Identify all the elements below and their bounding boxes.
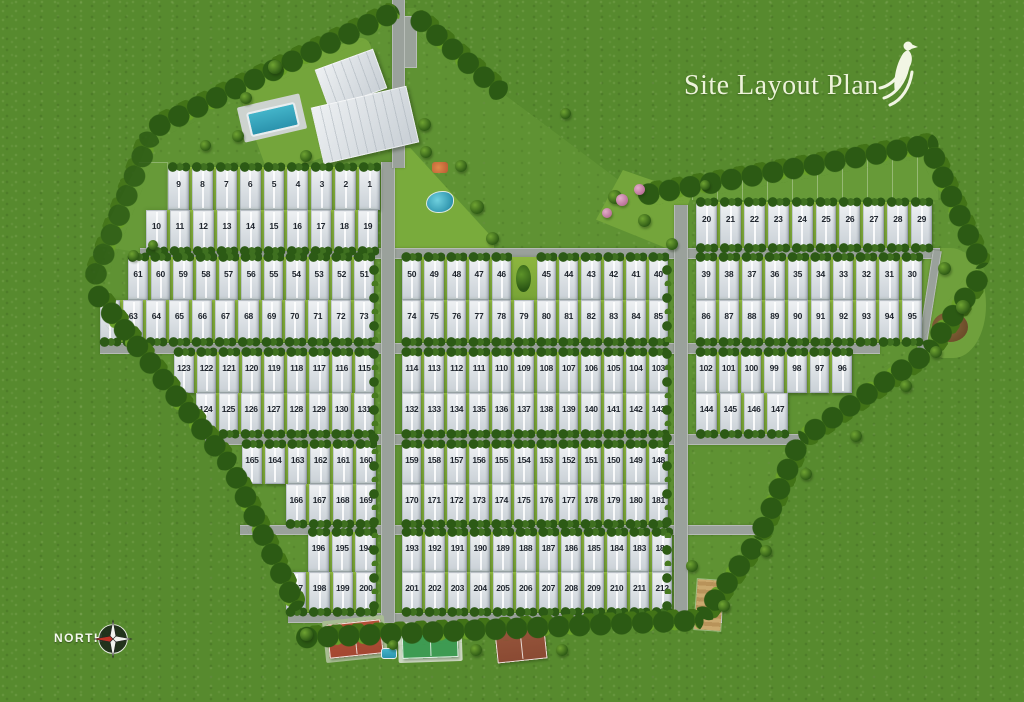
- plot-number: 147: [767, 404, 788, 414]
- plot-number: 93: [856, 311, 876, 321]
- plot-23: 23: [768, 202, 789, 248]
- plot-149: 149: [626, 444, 645, 484]
- plot-21: 21: [720, 202, 741, 248]
- bush-icon: [191, 162, 214, 172]
- plot-row-144-147: 144145146147: [696, 393, 788, 434]
- plot-number: 153: [537, 455, 556, 465]
- plot-row-30-39: 39383736353433323130: [696, 257, 922, 300]
- bush-icon: [446, 439, 467, 449]
- bush-icon: [810, 252, 832, 262]
- plot-20: 20: [696, 202, 717, 248]
- plot-row-166-169: 166167168169: [286, 484, 376, 524]
- plot-81: 81: [559, 300, 578, 342]
- plot-33: 33: [833, 257, 853, 300]
- flowering-tree-icon: [602, 208, 612, 218]
- plot-number: 164: [265, 455, 285, 465]
- plot-number: 71: [308, 311, 328, 321]
- plot-206: 206: [516, 572, 536, 612]
- bush-icon: [218, 252, 240, 262]
- bush-icon: [695, 429, 718, 439]
- plot-number: 120: [242, 363, 262, 373]
- plot-76: 76: [447, 300, 466, 342]
- plot-number: 105: [604, 363, 623, 373]
- plot-211: 211: [630, 572, 650, 612]
- bush-icon: [513, 439, 534, 449]
- plot-row-132-143: 132133134135136137138139140141142143: [402, 393, 668, 434]
- plot-170: 170: [402, 484, 421, 524]
- plot-78: 78: [492, 300, 511, 342]
- plot-number: 3: [311, 179, 332, 189]
- plot-number: 199: [333, 583, 353, 593]
- plot-number: 109: [514, 363, 533, 373]
- plot-166: 166: [286, 484, 306, 524]
- plot-number: 10: [146, 221, 167, 231]
- tree-icon: [700, 180, 710, 190]
- bush-icon: [263, 429, 285, 439]
- bush-icon: [215, 162, 238, 172]
- bush-icon: [764, 337, 786, 347]
- bush-icon: [168, 337, 190, 347]
- plot-number: 80: [537, 311, 556, 321]
- plot-row-51-61: 6160595857565554535251: [128, 257, 374, 300]
- plot-164: 164: [265, 444, 285, 484]
- tree-icon: [200, 140, 211, 151]
- bush-icon: [718, 347, 740, 357]
- plot-number: 205: [493, 583, 513, 593]
- tree-icon: [666, 238, 678, 250]
- bush-icon: [358, 162, 381, 172]
- bush-icon: [167, 162, 190, 172]
- bush-icon: [815, 197, 838, 207]
- plot-number: 92: [833, 311, 853, 321]
- plot-number: 184: [607, 543, 627, 553]
- plot-number: 42: [604, 269, 623, 279]
- bush-icon: [492, 527, 514, 537]
- plot-number: 151: [581, 455, 600, 465]
- plot-190: 190: [470, 532, 490, 572]
- plot-29: 29: [911, 202, 932, 248]
- plot-number: 17: [311, 221, 332, 231]
- plot-30: 30: [902, 257, 922, 300]
- plot-number: 211: [630, 583, 650, 593]
- plot-147: 147: [767, 393, 788, 434]
- bush-icon: [862, 197, 885, 207]
- bush-icon: [191, 337, 213, 347]
- bush-icon: [625, 337, 646, 347]
- plot-number: 78: [492, 311, 511, 321]
- plot-number: 142: [626, 404, 645, 414]
- plot-number: 133: [424, 404, 443, 414]
- plot-number: 121: [219, 363, 239, 373]
- bush-icon: [331, 252, 353, 262]
- bush-icon: [309, 439, 331, 449]
- plot-99: 99: [764, 352, 784, 393]
- road-vertical-left: [381, 162, 395, 622]
- bush-icon: [287, 439, 309, 449]
- bush-icon: [536, 337, 557, 347]
- plot-61: 61: [128, 257, 148, 300]
- plot-48: 48: [447, 257, 466, 300]
- plot-number: 52: [332, 269, 352, 279]
- plot-number: 5: [264, 179, 285, 189]
- plot-number: 84: [626, 311, 645, 321]
- plot-number: 57: [219, 269, 239, 279]
- bush-icon: [307, 527, 330, 537]
- plot-52: 52: [332, 257, 352, 300]
- plot-146: 146: [744, 393, 765, 434]
- plot-number: 6: [240, 179, 261, 189]
- plot-number: 87: [719, 311, 739, 321]
- plot-number: 208: [561, 583, 581, 593]
- bush-icon: [286, 162, 309, 172]
- bush-icon: [240, 252, 262, 262]
- plot-number: 28: [887, 214, 908, 224]
- plot-number: 154: [514, 455, 533, 465]
- plot-84: 84: [626, 300, 645, 342]
- tree-verge-left: [369, 258, 380, 610]
- bush-icon: [536, 252, 557, 262]
- bush-icon: [263, 347, 285, 357]
- plot-157: 157: [447, 444, 466, 484]
- bush-icon: [878, 252, 900, 262]
- plot-66: 66: [192, 300, 212, 342]
- plot-75: 75: [424, 300, 443, 342]
- bush-icon: [603, 252, 624, 262]
- plot-91: 91: [811, 300, 831, 342]
- plot-13: 13: [217, 210, 238, 251]
- plot-102: 102: [696, 352, 716, 393]
- plot-number: 130: [332, 404, 352, 414]
- plot-37: 37: [742, 257, 762, 300]
- plot-95: 95: [902, 300, 922, 342]
- bush-icon: [558, 439, 579, 449]
- bush-icon: [286, 429, 308, 439]
- plot-row-86-95: 86878889909192939495: [696, 300, 922, 342]
- plot-162: 162: [310, 444, 330, 484]
- plot-number: 102: [696, 363, 716, 373]
- plot-58: 58: [196, 257, 216, 300]
- bush-icon: [423, 337, 444, 347]
- plot-number: 117: [309, 363, 329, 373]
- bush-icon: [492, 607, 514, 617]
- bush-icon: [536, 439, 557, 449]
- plot-number: 96: [832, 363, 852, 373]
- bush-icon: [603, 439, 624, 449]
- plot-178: 178: [581, 484, 600, 524]
- plot-179: 179: [604, 484, 623, 524]
- bush-icon: [491, 347, 512, 357]
- plot-80: 80: [537, 300, 556, 342]
- plot-18: 18: [334, 210, 355, 251]
- plot-number: 201: [402, 583, 422, 593]
- tree-icon: [486, 232, 499, 245]
- plot-184: 184: [607, 532, 627, 572]
- plot-27: 27: [863, 202, 884, 248]
- bush-icon: [308, 429, 330, 439]
- plot-number: 69: [262, 311, 282, 321]
- bush-icon: [513, 347, 534, 357]
- plot-number: 47: [469, 269, 488, 279]
- bush-icon: [629, 527, 651, 537]
- bush-icon: [491, 439, 512, 449]
- tree-icon: [556, 644, 568, 656]
- plot-189: 189: [493, 532, 513, 572]
- tree-icon: [300, 150, 312, 162]
- plot-47: 47: [469, 257, 488, 300]
- plot-34: 34: [811, 257, 831, 300]
- plot-number: 190: [470, 543, 490, 553]
- plot-number: 1: [359, 179, 380, 189]
- plot-number: 128: [287, 404, 307, 414]
- plot-53: 53: [309, 257, 329, 300]
- plot-141: 141: [604, 393, 623, 434]
- bush-icon: [718, 337, 740, 347]
- bush-icon: [513, 429, 534, 439]
- north-compass-icon: [92, 618, 134, 660]
- plot-198: 198: [309, 572, 329, 612]
- plot-68: 68: [238, 300, 258, 342]
- bush-icon: [173, 347, 195, 357]
- plot-number: 29: [911, 214, 932, 224]
- bush-icon: [695, 197, 718, 207]
- plot-177: 177: [559, 484, 578, 524]
- plot-155: 155: [492, 444, 511, 484]
- bush-icon: [469, 527, 491, 537]
- bush-icon: [491, 252, 512, 262]
- bush-icon: [401, 252, 422, 262]
- plot-185: 185: [584, 532, 604, 572]
- plot-151: 151: [581, 444, 600, 484]
- plot-82: 82: [581, 300, 600, 342]
- plot-number: 163: [288, 455, 308, 465]
- plot-number: 206: [516, 583, 536, 593]
- plot-133: 133: [424, 393, 443, 434]
- plot-number: 19: [358, 221, 379, 231]
- tree-icon: [232, 130, 244, 142]
- bush-icon: [307, 337, 329, 347]
- plot-number: 162: [310, 455, 330, 465]
- bush-icon: [558, 337, 579, 347]
- plot-number: 123: [174, 363, 194, 373]
- plot-number: 209: [584, 583, 604, 593]
- tree-icon: [850, 430, 862, 442]
- plot-number: 41: [626, 269, 645, 279]
- plot-row-1-9: 987654321: [168, 167, 380, 210]
- plot-number: 135: [469, 404, 488, 414]
- bush-icon: [603, 337, 624, 347]
- plot-number: 4: [287, 179, 308, 189]
- bush-icon: [695, 347, 717, 357]
- plot-98: 98: [787, 352, 807, 393]
- plot-31: 31: [879, 257, 899, 300]
- tree-icon: [418, 118, 431, 131]
- bush-icon: [285, 252, 307, 262]
- plot-137: 137: [514, 393, 533, 434]
- plot-number: 174: [492, 495, 511, 505]
- plot-row-124-131: 124125126127128129130131: [196, 393, 374, 434]
- bush-icon: [401, 337, 422, 347]
- plot-9: 9: [168, 167, 189, 210]
- plot-44: 44: [559, 257, 578, 300]
- plot-number: 157: [447, 455, 466, 465]
- plot-150: 150: [604, 444, 623, 484]
- plot-number: 192: [425, 543, 445, 553]
- tree-icon: [760, 545, 772, 557]
- plot-159: 159: [402, 444, 421, 484]
- plot-number: 76: [447, 311, 466, 321]
- plot-number: 45: [537, 269, 556, 279]
- plot-row-115-123: 123122121120119118117116115: [174, 352, 374, 393]
- plot-168: 168: [333, 484, 353, 524]
- tree-icon: [455, 160, 467, 172]
- plot-2: 2: [335, 167, 356, 210]
- plot-173: 173: [469, 484, 488, 524]
- plot-number: 167: [309, 495, 329, 505]
- plot-number: 9: [168, 179, 189, 189]
- plot-83: 83: [604, 300, 623, 342]
- bush-icon: [332, 607, 354, 617]
- plot-38: 38: [719, 257, 739, 300]
- plot-number: 150: [604, 455, 623, 465]
- plot-127: 127: [264, 393, 284, 434]
- plot-number: 108: [537, 363, 556, 373]
- plot-90: 90: [788, 300, 808, 342]
- plot-number: 126: [241, 404, 261, 414]
- plot-138: 138: [537, 393, 556, 434]
- plot-number: 111: [469, 363, 488, 373]
- plot-number: 180: [626, 495, 645, 505]
- bush-icon: [741, 252, 763, 262]
- bush-icon: [401, 607, 423, 617]
- plot-110: 110: [492, 352, 511, 393]
- plot-number: 176: [537, 495, 556, 505]
- plot-6: 6: [240, 167, 261, 210]
- plot-number: 32: [856, 269, 876, 279]
- plot-number: 161: [333, 455, 353, 465]
- plot-172: 172: [447, 484, 466, 524]
- bush-icon: [603, 347, 624, 357]
- plot-97: 97: [810, 352, 830, 393]
- plot-number: 186: [561, 543, 581, 553]
- plot-17: 17: [311, 210, 332, 251]
- green-gap: [514, 257, 533, 300]
- plot-100: 100: [741, 352, 761, 393]
- plot-number: 119: [264, 363, 284, 373]
- plot-number: 99: [764, 363, 784, 373]
- plot-number: 16: [287, 221, 308, 231]
- bush-icon: [423, 439, 444, 449]
- plot-number: 138: [537, 404, 556, 414]
- bush-icon: [832, 252, 854, 262]
- plot-204: 204: [470, 572, 490, 612]
- plot-136: 136: [492, 393, 511, 434]
- plot-64: 64: [146, 300, 166, 342]
- plot-45: 45: [537, 257, 556, 300]
- plot-number: 168: [333, 495, 353, 505]
- plot-117: 117: [309, 352, 329, 393]
- bush-icon: [625, 252, 646, 262]
- plot-number: 202: [425, 583, 445, 593]
- plot-number: 27: [863, 214, 884, 224]
- bush-icon: [536, 429, 557, 439]
- plot-199: 199: [333, 572, 353, 612]
- plot-107: 107: [559, 352, 578, 393]
- plot-112: 112: [447, 352, 466, 393]
- bush-icon: [332, 439, 354, 449]
- tree-icon: [240, 92, 252, 104]
- plot-11: 11: [170, 210, 191, 251]
- bush-icon: [261, 337, 283, 347]
- bush-icon: [447, 527, 469, 537]
- plot-109: 109: [514, 352, 533, 393]
- plot-number: 127: [264, 404, 284, 414]
- plot-187: 187: [539, 532, 559, 572]
- plot-161: 161: [333, 444, 353, 484]
- plot-number: 178: [581, 495, 600, 505]
- plot-number: 13: [217, 221, 238, 231]
- plot-number: 2: [335, 179, 356, 189]
- bush-icon: [719, 197, 742, 207]
- plot-129: 129: [309, 393, 329, 434]
- plot-number: 26: [839, 214, 860, 224]
- plot-number: 136: [492, 404, 511, 414]
- plot-number: 140: [581, 404, 600, 414]
- plot-56: 56: [241, 257, 261, 300]
- bush-icon: [308, 252, 330, 262]
- plot-111: 111: [469, 352, 488, 393]
- bush-icon: [767, 197, 790, 207]
- plot-93: 93: [856, 300, 876, 342]
- plot-205: 205: [493, 572, 513, 612]
- bush-icon: [196, 347, 218, 357]
- bush-icon: [901, 252, 923, 262]
- plot-16: 16: [287, 210, 308, 251]
- plot-number: 59: [173, 269, 193, 279]
- bush-icon: [446, 252, 467, 262]
- tree-icon: [420, 146, 432, 158]
- bush-icon: [560, 527, 582, 537]
- bush-icon: [580, 252, 601, 262]
- bush-icon: [214, 337, 236, 347]
- bush-icon: [536, 347, 557, 357]
- plot-number: 149: [626, 455, 645, 465]
- plot-116: 116: [332, 352, 352, 393]
- bush-icon: [855, 252, 877, 262]
- plot-number: 155: [492, 455, 511, 465]
- plot-number: 188: [516, 543, 536, 553]
- plot-number: 12: [193, 221, 214, 231]
- plot-number: 67: [215, 311, 235, 321]
- tree-verge-right: [662, 258, 673, 610]
- plot-196: 196: [308, 532, 329, 572]
- plot-176: 176: [537, 484, 556, 524]
- road-vertical-right: [674, 205, 688, 623]
- plot-number: 177: [559, 495, 578, 505]
- bush-icon: [743, 197, 766, 207]
- bush-icon: [583, 527, 605, 537]
- plot-number: 66: [192, 311, 212, 321]
- plot-number: 175: [514, 495, 533, 505]
- plot-203: 203: [448, 572, 468, 612]
- plot-number: 134: [447, 404, 466, 414]
- bush-icon: [264, 439, 286, 449]
- plot-number: 137: [514, 404, 533, 414]
- bush-icon: [331, 429, 353, 439]
- plot-number: 146: [744, 404, 765, 414]
- plot-180: 180: [626, 484, 645, 524]
- plot-46: 46: [492, 257, 511, 300]
- plot-101: 101: [719, 352, 739, 393]
